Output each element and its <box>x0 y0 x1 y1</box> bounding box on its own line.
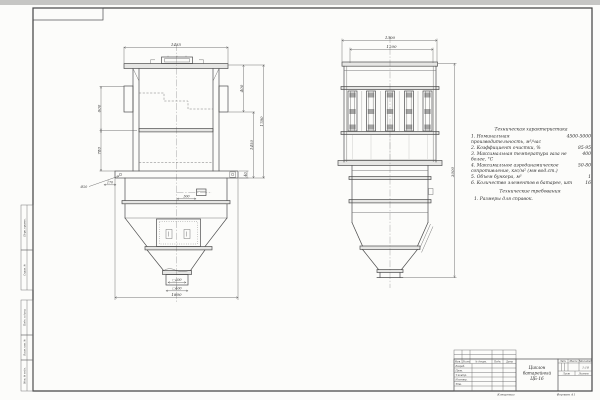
dim-bottom-width: 1800 <box>171 292 182 297</box>
row-prov: Пров. <box>455 370 463 373</box>
col-data: Дата <box>505 360 514 363</box>
corner-reference-box <box>33 8 103 20</box>
margin-stamp: Перв. примен. <box>21 205 33 250</box>
door-latch <box>184 230 190 239</box>
tech-requirements-title: Технические требования <box>474 189 586 194</box>
hopper-ring-flange <box>349 200 431 203</box>
spec-label: 6. Количество элементов в батарее, шт <box>471 180 572 185</box>
dim-side-width-inner: 1200 <box>386 44 397 49</box>
title-block-right: Лит. Масса Масштаб 1:10 Лист Листов <box>558 359 592 376</box>
spec-label: 1. Номинальная производительность, м³/ча… <box>471 134 541 144</box>
lifting-lug <box>151 60 156 64</box>
spec-item: 85-95 2. Коэффициент очистки, % <box>471 145 591 150</box>
col-massa: Масса <box>569 360 579 363</box>
title-block-name: Циклон батарейный ЦБ-16 <box>516 359 558 391</box>
hopper-upper-box <box>122 178 230 218</box>
cyclone-element <box>423 91 432 131</box>
margin-stamp-label: Подп. и дата <box>24 308 27 327</box>
shell <box>124 69 228 172</box>
title-block-left: Изм. Лист № докум. Подп. Дата Разраб. Пр… <box>454 359 516 391</box>
tube-plate <box>139 129 213 132</box>
spec-value: 4500-5000 <box>564 134 591 139</box>
hopper <box>349 166 433 278</box>
format-label: Формат А1 <box>557 393 576 397</box>
dim-side-height: 3000 <box>450 166 455 177</box>
margin-stamp-label: Взам. инв. № <box>24 339 27 357</box>
access-door <box>157 219 201 247</box>
hopper-flange <box>122 201 230 204</box>
spec-value: 16 <box>582 180 591 185</box>
doc-name-line2: батарейный <box>523 371 552 376</box>
outlet-flange <box>377 270 403 273</box>
dim-right-mid: 1450 <box>249 139 254 150</box>
cyclone-element <box>405 91 414 131</box>
dim-left-lower: 780 <box>97 147 102 155</box>
dim-overhang: 170 <box>107 180 113 184</box>
margin-stamp: Взам. инв. № <box>21 335 33 360</box>
col-dokum: № докум. <box>474 360 487 363</box>
side-tab <box>219 86 228 112</box>
lower-tube-sheet <box>341 132 439 135</box>
spec-item: 400 3. Максимальная температура газа не … <box>471 151 591 162</box>
spec-item: 16 6. Количество элементов в батарее, шт <box>471 180 591 185</box>
tech-requirements-block: Технические требования 1. Размеры для сп… <box>474 189 586 214</box>
col-podp: Подп. <box>493 360 502 363</box>
row-tkontr: Т.контр. <box>456 374 468 377</box>
margin-stamp: Справ. № <box>21 250 33 290</box>
anchor-hole <box>119 173 122 176</box>
side-nozzle <box>429 189 434 195</box>
gusset <box>133 69 139 82</box>
row-nkontr: Н.контр. <box>455 379 468 382</box>
col-masshtab: Масштаб <box>578 360 592 363</box>
requirement-item: 1. Размеры для справок. <box>474 197 586 202</box>
dim-outlet-inner: □300 <box>172 278 181 282</box>
row-razrab: Разраб. <box>455 365 466 368</box>
tech-characteristics-block: Техническая характеристика 4500-5000 1. … <box>471 127 591 246</box>
dim-outlet-outer: □400 <box>172 286 181 290</box>
dim-right-inner: 400 <box>239 84 244 93</box>
base-ring <box>338 161 442 166</box>
margin-stamps: Перв. примен. Справ. № Подп. и дата Взам… <box>21 205 33 391</box>
spec-value: 50-80 <box>575 163 591 168</box>
dim-right-outer: 1780 <box>259 116 264 127</box>
dim-nozzle-offset: 300 <box>183 194 189 198</box>
margin-stamp: Подп. и дата <box>21 300 33 335</box>
cone-flange <box>145 247 212 250</box>
spec-item: 1 5. Объем бункера, м³ <box>471 174 591 179</box>
revision-grid <box>454 350 516 359</box>
anchor-hole <box>231 173 234 176</box>
discharge-outlet: □300 □400 <box>163 271 192 291</box>
support-brace <box>419 224 431 250</box>
gusset <box>213 69 219 82</box>
cyclone-element <box>348 91 357 131</box>
front-view: □300 □400 1435 600 780 400 1450 <box>80 42 265 302</box>
hole-note: Ø20 <box>80 184 88 189</box>
col-izm: Изм. <box>454 360 461 363</box>
spec-item: 50-80 4. Максимальное аэродинамическое с… <box>471 163 591 174</box>
doc-name-line1: Циклон <box>529 365 546 370</box>
spec-label: 3. Максимальная температура газа не боле… <box>471 151 567 161</box>
margin-stamp-label: Справ. № <box>24 264 27 276</box>
top-flange <box>342 62 438 66</box>
margin-stamp-label: Перв. примен. <box>24 218 27 238</box>
margin-stamp-label: Инв. № подл. <box>24 367 27 385</box>
gas-partition-hidden-line <box>139 93 213 109</box>
door-latch <box>166 230 172 239</box>
hopper-ring-flange <box>349 177 431 180</box>
tech-characteristics-title: Техническая характеристика <box>471 127 591 132</box>
list-label: Лист <box>562 372 571 375</box>
support-brace <box>422 227 434 253</box>
listov-label: Листов <box>578 372 590 375</box>
title-block: Изм. Лист № докум. Подп. Дата Разраб. Пр… <box>454 350 592 397</box>
spec-label: 2. Коэффициент очистки, % <box>471 145 541 150</box>
spec-value: 1 <box>585 174 591 179</box>
dim-base-thickness: 40 <box>243 172 247 177</box>
lifting-lug <box>199 60 204 64</box>
margin-stamp: Инв. № подл. <box>21 360 33 391</box>
door-bolt-circle <box>160 222 198 245</box>
cyclone-element <box>386 91 395 131</box>
upper-tube-sheet <box>341 87 439 90</box>
row-utv: Утв. <box>456 383 462 386</box>
spec-item: 4500-5000 1. Номинальная производительно… <box>471 134 591 145</box>
dim-left-upper: 600 <box>97 104 102 112</box>
hopper-cone <box>125 218 227 272</box>
top-cover <box>151 56 204 64</box>
side-view-dimensions: 1300 1200 3000 <box>342 35 457 278</box>
top-flange <box>124 64 228 69</box>
spec-value: 400 <box>579 151 591 156</box>
cone-flange <box>360 246 420 249</box>
scale-value: 1:10 <box>582 366 589 370</box>
spec-value: 85-95 <box>575 145 591 150</box>
kopiroval-label: Копировал <box>496 393 514 397</box>
col-list: Лист <box>461 360 470 363</box>
dim-side-width-outer: 1300 <box>385 35 396 40</box>
spec-label: 4. Максимальное аэродинамическое сопроти… <box>471 163 558 173</box>
blueprint-sheet: Перв. примен. Справ. № Подп. и дата Взам… <box>0 0 600 400</box>
side-tab <box>124 86 133 112</box>
dim-front-width: 1435 <box>171 42 182 47</box>
spec-label: 5. Объем бункера, м³ <box>471 174 522 179</box>
cyclone-element <box>367 91 376 131</box>
side-view: 1300 1200 3000 <box>338 35 457 288</box>
col-lit: Лит. <box>559 360 567 363</box>
side-nozzle <box>197 189 207 196</box>
doc-name-line3: ЦБ-16 <box>530 376 544 381</box>
